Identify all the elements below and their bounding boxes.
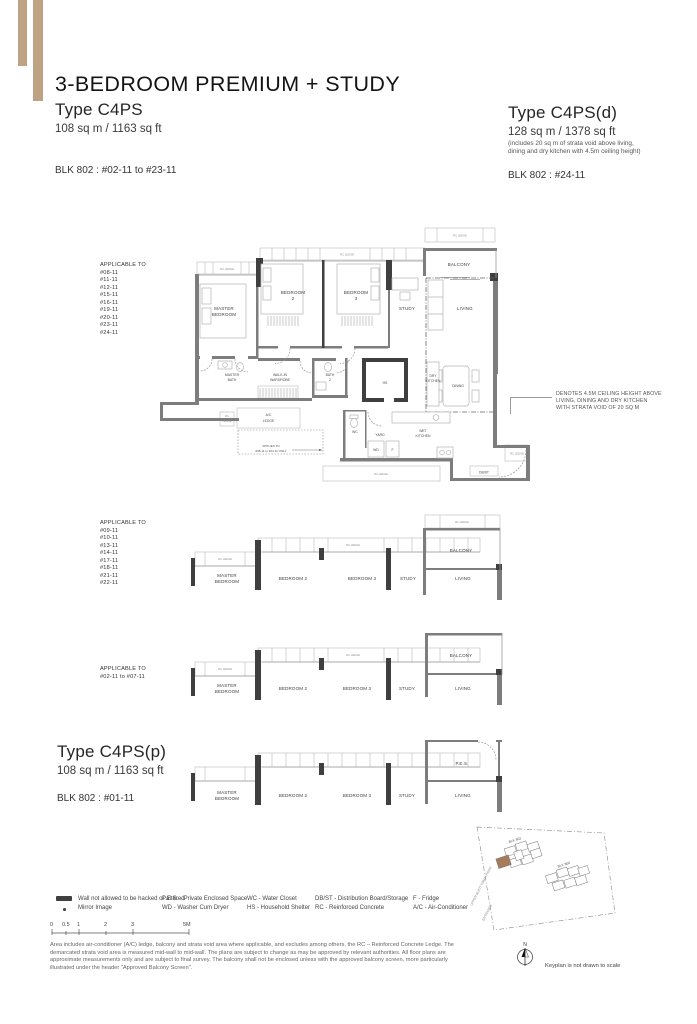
svg-text:BEDROOM: BEDROOM: [215, 796, 239, 801]
label-study: STUDY: [399, 793, 415, 798]
type-c4psp-block: Type C4PS(p) 108 sq m / 1163 sq ft: [57, 742, 166, 777]
svg-text:BEDROOM: BEDROOM: [212, 312, 236, 317]
label-study: STUDY: [400, 576, 416, 581]
north-compass-icon: N: [518, 942, 533, 966]
label-bedroom3: BEDROOM: [344, 290, 368, 295]
svg-text:2: 2: [329, 378, 331, 382]
scale-bar: 0 0.5 1 2 3 5M: [50, 920, 200, 940]
legend-rc: RC - Reinforced Concrete: [315, 905, 384, 911]
legend-pes: P.E.S. - Private Enclosed Space: [162, 896, 247, 902]
ceiling-note-leader-h: [510, 397, 552, 398]
applicable-list-low: APPLICABLE TO #02-11 to #07-11: [100, 666, 146, 681]
label-rc-small: RC: [225, 414, 229, 418]
keyplan: BLK 802 BLK 800: [460, 818, 695, 998]
svg-text:KITCHEN: KITCHEN: [426, 379, 441, 383]
label-rc-ledge-master: RC LEDGE: [218, 557, 232, 561]
legend-hs: HS - Household Shelter: [247, 905, 310, 911]
floorplan-page: 3-BEDROOM PREMIUM + STUDY Type C4PS 108 …: [0, 0, 697, 1024]
label-living: LIVING: [455, 793, 471, 798]
ceiling-note: DENOTES 4.5M CEILING HEIGHT ABOVE LIVING…: [556, 391, 696, 413]
label-bedroom2: BEDROOM 2: [279, 793, 308, 798]
label-living: LIVING: [455, 576, 471, 581]
pes-door-arc: [478, 742, 496, 760]
svg-text:3: 3: [355, 296, 358, 301]
scale-3: 3: [131, 922, 134, 928]
blk-800-cluster: BLK 800: [543, 856, 592, 894]
svg-text:BATH: BATH: [228, 378, 237, 382]
deco-bar-long: [33, 0, 43, 101]
label-rc-ledge-balcony: RC LEDGE: [455, 520, 469, 524]
wall-legend-icon: [56, 896, 72, 901]
svg-text:N: N: [523, 942, 527, 948]
label-bedroom3: BEDROOM 3: [348, 576, 377, 581]
floorplan-low: MASTER BEDROOM BEDROOM 2 BEDROOM 3 STUDY…: [180, 632, 530, 717]
type-c4ps-block: Type C4PS 108 sq m / 1163 sq ft: [55, 100, 162, 135]
label-rc-ledge-master: RC LEDGE: [218, 667, 232, 671]
applicable-list-mid: APPLICABLE TO #09-11#10-11 #13-11#14-11 …: [100, 520, 146, 588]
label-bedroom2: BEDROOM: [281, 290, 305, 295]
label-wc: WC: [352, 430, 358, 434]
label-rc-ledge-bottom: RC LEDGE: [374, 472, 388, 476]
svg-text:LEDGE: LEDGE: [222, 419, 231, 423]
floorplan-pes: MASTER BEDROOM BEDROOM 2 BEDROOM 3 STUDY…: [180, 737, 530, 822]
label-master-bath: MASTER: [225, 373, 240, 377]
label-master-bedroom: MASTER: [217, 790, 237, 795]
type-c4psp-name: Type C4PS(p): [57, 742, 166, 762]
type-c4psd-area: 128 sq m / 1378 sq ft: [508, 126, 641, 138]
label-living: LIVING: [457, 306, 473, 311]
type-c4ps-name: Type C4PS: [55, 100, 162, 120]
legend-wc: WC - Water Closet: [247, 896, 297, 902]
label-rc-ledge-top: RC LEDGE: [340, 253, 354, 257]
applies-note-arrowhead: [319, 449, 323, 452]
blk-800-label: BLK 800: [557, 861, 571, 869]
label-dining: DINING: [452, 384, 464, 388]
svg-text:KITCHEN: KITCHEN: [416, 434, 431, 438]
blk-802-cluster: BLK 802: [492, 832, 543, 873]
svg-text:BEDROOM: BEDROOM: [215, 579, 239, 584]
highlighted-unit: [496, 855, 511, 869]
type-c4psp-area: 108 sq m / 1163 sq ft: [57, 765, 166, 777]
label-wet-kitchen: WET: [419, 429, 427, 433]
label-rc-ledge-right: RC LEDGE: [510, 452, 524, 456]
label-wd: WD: [373, 448, 379, 452]
entrance-label: ENTRANCE: [481, 903, 493, 922]
svg-text:LEDGE: LEDGE: [263, 419, 275, 423]
scale-05: 0.5: [62, 922, 70, 928]
svg-text:WARDROBE: WARDROBE: [270, 378, 291, 382]
svg-text:BEDROOM: BEDROOM: [215, 689, 239, 694]
type-c4psd-note: (includes 20 sq m of strata void above l…: [508, 140, 641, 156]
svg-text:2: 2: [292, 296, 295, 301]
legend-dbst: DB/ST - Distribution Board/Storage: [315, 896, 408, 902]
floorplan-mid: MASTER BEDROOM BEDROOM 2 BEDROOM 3 STUDY…: [180, 512, 530, 607]
label-rc-ledge-long: RC LEDGE: [346, 653, 360, 657]
label-bedroom3: BEDROOM 3: [343, 793, 372, 798]
legend-mirror: Mirror Image: [78, 905, 112, 911]
type-c4ps-block-units: BLK 802 : #02-11 to #23-11: [55, 165, 176, 176]
label-rc-ledge-balcony: RC LEDGE: [453, 234, 467, 238]
label-bath2: BATH: [326, 373, 335, 377]
label-ac-ledge: A/C: [266, 413, 272, 417]
label-pes: P.E.S.: [455, 761, 468, 766]
label-rc-ledge-long: RC LEDGE: [346, 543, 360, 547]
label-db-st: DB/ST: [479, 471, 489, 475]
label-wardrobe: WALK-IN: [273, 373, 288, 377]
label-bedroom2: BEDROOM 2: [279, 576, 308, 581]
deco-bar-short: [18, 0, 27, 66]
type-c4psd-block: Type C4PS(d) 128 sq m / 1378 sq ft (incl…: [508, 103, 641, 156]
label-living: LIVING: [455, 686, 471, 691]
legend-f: F - Fridge: [413, 896, 439, 902]
type-c4psp-block-units: BLK 802 : #01-11: [57, 793, 134, 804]
ceiling-note-leader-v: [510, 397, 511, 414]
furniture: [200, 264, 479, 458]
label-master-bedroom: MASTER: [214, 306, 234, 311]
page-title: 3-BEDROOM PREMIUM + STUDY: [55, 72, 400, 97]
label-master-bedroom: MASTER: [217, 573, 237, 578]
disclaimer-text: Area includes air-conditioner (A/C) ledg…: [50, 942, 468, 972]
applies-note: APPLIES TO: [262, 444, 280, 448]
label-fridge: F: [391, 448, 393, 452]
label-bedroom3: BEDROOM 3: [343, 686, 372, 691]
svg-text:#08-11 to #24-11 ONLY: #08-11 to #24-11 ONLY: [255, 449, 286, 453]
type-c4ps-area: 108 sq m / 1163 sq ft: [55, 123, 162, 135]
scale-5m: 5M: [183, 922, 191, 928]
label-hs: HS: [383, 381, 388, 385]
label-balcony: BALCONY: [450, 653, 473, 658]
scale-2: 2: [104, 922, 107, 928]
floorplan-main: MASTER BEDROOM BEDROOM 2 BEDROOM 3 STUDY…: [140, 220, 530, 505]
label-yard: YARD: [375, 433, 385, 437]
label-balcony: BALCONY: [448, 262, 471, 267]
label-balcony: BALCONY: [450, 548, 473, 553]
label-study: STUDY: [399, 306, 415, 311]
keyplan-caption: Keyplan is not drawn to scale: [545, 963, 620, 969]
scale-1: 1: [77, 922, 80, 928]
label-study: STUDY: [399, 686, 415, 691]
type-c4psd-block-units: BLK 802 : #24-11: [508, 170, 585, 181]
legend-wd: WD - Washer Cum Dryer: [162, 905, 228, 911]
label-dry-kitchen: DRY: [429, 374, 437, 378]
label-rc-ledge-master: RC LEDGE: [220, 267, 234, 271]
type-c4psd-name: Type C4PS(d): [508, 103, 641, 123]
label-master-bedroom: MASTER: [217, 683, 237, 688]
label-bedroom2: BEDROOM 2: [279, 686, 308, 691]
mirror-image-icon: [63, 908, 66, 911]
scale-0: 0: [50, 922, 53, 928]
